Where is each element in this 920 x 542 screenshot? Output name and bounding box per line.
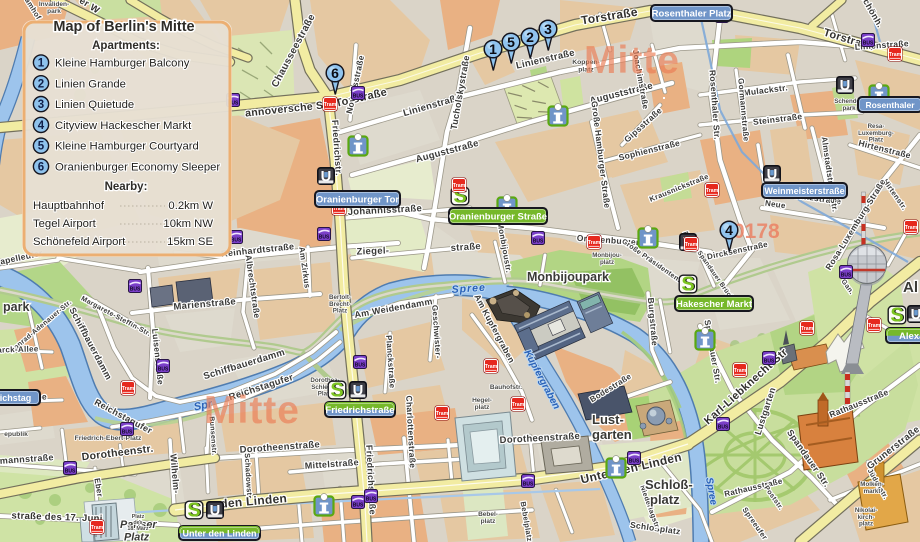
svg-text:Oranienburger Tor: Oranienburger Tor [316,195,400,206]
svg-text:Rosenthaler Platz: Rosenthaler Platz [652,9,732,20]
svg-text:BUS: BUS [231,238,242,244]
svg-text:BUS: BUS [718,425,729,431]
svg-text:BUS: BUS [533,239,544,245]
svg-text:BUS: BUS [319,235,330,241]
svg-text:Tram: Tram [801,326,814,332]
svg-text:BUS: BUS [65,469,76,475]
svg-text:Cityview Hackescher Markt: Cityview Hackescher Markt [55,120,192,132]
svg-text:BUS: BUS [353,94,364,100]
svg-text:Unter den Linden: Unter den Linden [183,529,257,539]
svg-text:BUS: BUS [629,459,640,465]
svg-text:Tram: Tram [905,225,918,231]
svg-text:eichstag: eichstag [0,393,31,403]
svg-text:Nearby:: Nearby: [105,181,148,193]
svg-text:10km NW: 10km NW [163,218,213,230]
svg-text:Tram: Tram [436,411,449,417]
svg-text:Oranienburger Straße: Oranienburger Straße [449,212,547,223]
svg-text:Friedrich-Ebert-Platz: Friedrich-Ebert-Platz [75,435,142,442]
svg-text:Bebel-platz: Bebel-platz [478,511,498,525]
svg-text:Monbijoupark: Monbijoupark [527,270,609,284]
svg-text:3: 3 [38,99,44,111]
svg-text:Tram: Tram [122,386,135,392]
svg-text:0.2km W: 0.2km W [168,200,213,212]
svg-text:Spree: Spree [451,282,486,296]
svg-text:15km SE: 15km SE [167,236,213,248]
svg-text:Tram: Tram [685,242,698,248]
svg-text:Tram: Tram [485,364,498,370]
svg-text:Tegel Airport: Tegel Airport [33,218,97,230]
svg-text:BUS: BUS [366,497,377,503]
svg-text:Alexander: Alexander [899,331,920,342]
svg-text:Linien Quietude: Linien Quietude [55,99,134,111]
svg-text:Apartments:: Apartments: [92,40,160,52]
svg-text:Tram: Tram [453,183,466,189]
svg-text:BUS: BUS [841,273,852,279]
svg-text:arck-Allee: arck-Allee [0,344,39,354]
svg-text:BUS: BUS [158,367,169,373]
svg-text:1: 1 [489,41,497,57]
svg-text:Hegel-platz: Hegel-platz [472,397,492,411]
svg-text:Tram: Tram [324,102,337,108]
svg-text:6: 6 [331,65,339,81]
svg-text:Hauptbahnhof: Hauptbahnhof [33,200,105,212]
svg-text:S: S [890,304,903,326]
svg-text:S: S [187,499,200,521]
svg-text:Mitte: Mitte [584,39,680,82]
svg-text:Rosenthaler: Rosenthaler [865,100,915,110]
svg-text:4: 4 [725,222,733,238]
svg-text:straße: straße [450,241,481,254]
svg-text:5: 5 [507,34,515,50]
svg-text:Tram: Tram [91,525,104,531]
svg-text:Map of Berlin's Mitte: Map of Berlin's Mitte [53,19,194,35]
svg-text:Friedrichstraße: Friedrichstraße [325,405,394,416]
svg-text:BUS: BUS [523,482,534,488]
svg-text:BUS: BUS [863,41,874,47]
svg-text:BUS: BUS [353,503,364,509]
svg-text:2: 2 [526,29,534,45]
svg-text:Al: Al [903,279,918,296]
svg-text:BUS: BUS [122,430,133,436]
svg-text:Tram: Tram [734,368,747,374]
svg-text:Linien Grande: Linien Grande [55,78,126,90]
svg-text:Kleine Hamburger Balcony: Kleine Hamburger Balcony [55,58,190,70]
svg-text:Molken-markt: Molken-markt [860,481,883,495]
svg-text:Tram: Tram [868,323,881,329]
svg-text:2: 2 [38,78,44,90]
svg-text:BUS: BUS [764,359,775,365]
svg-text:Weinmeisterstraße: Weinmeisterstraße [764,186,844,196]
svg-text:BUS: BUS [355,363,366,369]
svg-text:3: 3 [544,21,552,37]
svg-text:5: 5 [38,141,45,153]
svg-text:4: 4 [38,120,45,132]
svg-text:Schönefeld Airport: Schönefeld Airport [33,236,126,248]
svg-text:Mitte: Mitte [204,389,300,432]
svg-text:Kleine Hamburger Courtyard: Kleine Hamburger Courtyard [55,141,199,153]
svg-text:Bauhofstr.: Bauhofstr. [490,384,522,391]
svg-text:BUS: BUS [130,287,141,293]
svg-text:Tram: Tram [889,52,902,58]
svg-text:epublik: epublik [4,431,28,438]
svg-text:Tram: Tram [512,402,525,408]
svg-text:1: 1 [38,58,45,70]
svg-text:Tram: Tram [588,240,601,246]
svg-text:Ziegel-: Ziegel- [356,245,389,257]
svg-text:S: S [681,273,694,295]
svg-text:Tram: Tram [706,188,719,194]
svg-text:S: S [330,379,343,401]
svg-text:park: park [3,300,29,314]
svg-text:Hakescher Markt: Hakescher Markt [676,299,753,310]
svg-text:Oranienburger Economy Sleeper: Oranienburger Economy Sleeper [55,162,220,174]
svg-text:0178: 0178 [733,220,780,243]
svg-text:6: 6 [38,162,44,174]
